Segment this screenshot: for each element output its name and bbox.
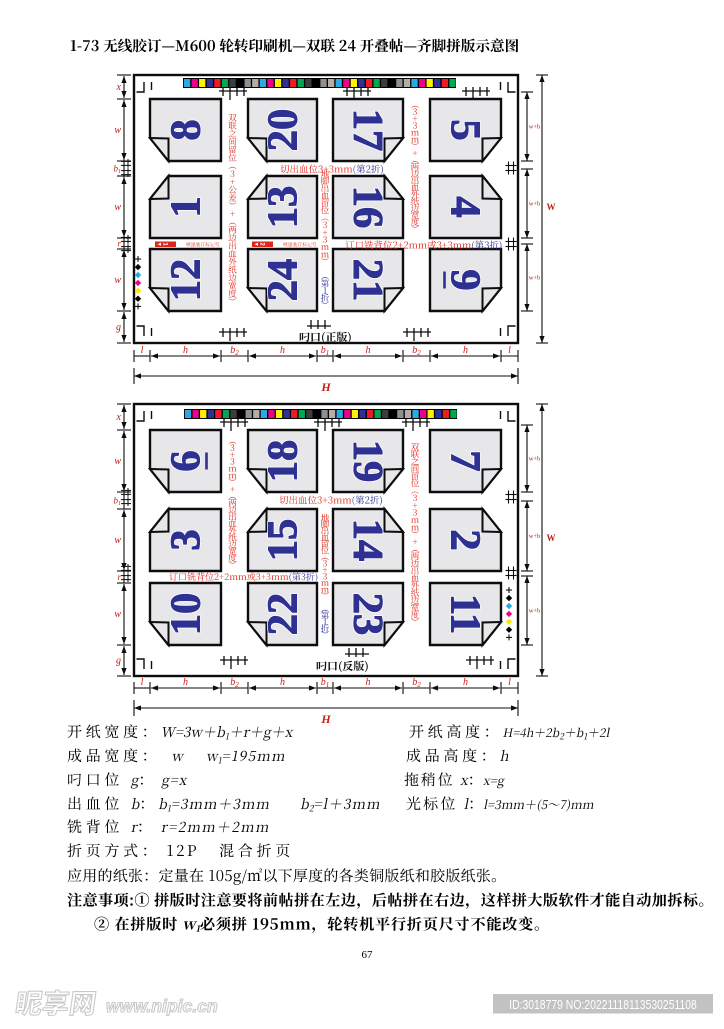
- svg-text:www.nipic.cn: www.nipic.cn: [106, 996, 218, 1016]
- svg-text:18: 18: [260, 440, 307, 483]
- svg-text:19: 19: [344, 440, 391, 483]
- svg-text:w: w: [114, 125, 121, 136]
- svg-text:H: H: [320, 712, 331, 726]
- svg-text:17: 17: [344, 109, 391, 152]
- svg-text:g: g: [116, 656, 121, 667]
- svg-text:W: W: [547, 202, 556, 212]
- svg-text:h: h: [366, 677, 371, 688]
- svg-text:h: h: [463, 345, 468, 356]
- svg-text:h: h: [463, 677, 468, 688]
- svg-text:l: l: [141, 677, 144, 688]
- svg-text:23: 23: [344, 593, 391, 636]
- svg-text:67: 67: [362, 949, 374, 961]
- svg-text:w: w: [114, 609, 121, 620]
- svg-text:h: h: [280, 345, 285, 356]
- svg-text:x: x: [116, 412, 122, 423]
- svg-text:h: h: [366, 345, 371, 356]
- svg-text:7: 7: [442, 450, 489, 471]
- svg-text:24: 24: [260, 259, 307, 302]
- svg-text:1: 1: [163, 196, 210, 217]
- svg-text:w+b: w+b: [529, 201, 541, 208]
- svg-text:g: g: [116, 322, 121, 333]
- svg-text:22: 22: [260, 593, 307, 636]
- svg-text:w+b: w+b: [529, 275, 541, 282]
- svg-text:11: 11: [442, 594, 489, 634]
- svg-text:12: 12: [163, 259, 210, 302]
- svg-text:21: 21: [344, 259, 391, 302]
- svg-text:h: h: [183, 677, 188, 688]
- svg-text:8: 8: [163, 119, 210, 140]
- svg-text:w+b: w+b: [529, 124, 541, 131]
- svg-text:16: 16: [344, 186, 391, 229]
- svg-text:h: h: [280, 677, 285, 688]
- svg-text:w+b: w+b: [529, 456, 541, 463]
- svg-text:l: l: [508, 345, 511, 356]
- svg-text:w+b: w+b: [529, 608, 541, 615]
- svg-text:W: W: [547, 533, 556, 543]
- svg-text:x: x: [116, 82, 122, 93]
- svg-text:r: r: [117, 239, 121, 249]
- svg-text:20: 20: [260, 109, 307, 152]
- svg-text:w+b: w+b: [529, 533, 541, 540]
- svg-text:w: w: [114, 535, 121, 546]
- svg-text:ID:3018779 NO:2022111811353025: ID:3018779 NO:20221118113530251108: [509, 998, 697, 1012]
- svg-text:6: 6: [163, 450, 210, 471]
- svg-text:2: 2: [442, 529, 489, 550]
- svg-text:w: w: [114, 456, 121, 467]
- svg-text:4: 4: [442, 196, 489, 217]
- svg-text:9: 9: [442, 269, 489, 290]
- svg-text:5: 5: [442, 119, 489, 140]
- svg-text:w: w: [114, 202, 121, 213]
- svg-text:r: r: [117, 572, 121, 582]
- svg-text:13: 13: [260, 186, 307, 229]
- svg-text:15: 15: [260, 519, 307, 562]
- svg-text:l: l: [141, 345, 144, 356]
- svg-text:w: w: [114, 275, 121, 286]
- svg-text:l: l: [508, 677, 511, 688]
- svg-text:H: H: [320, 380, 331, 394]
- svg-text:14: 14: [344, 519, 391, 562]
- svg-text:3: 3: [163, 529, 210, 550]
- svg-text:10: 10: [163, 593, 210, 636]
- svg-text:h: h: [183, 345, 188, 356]
